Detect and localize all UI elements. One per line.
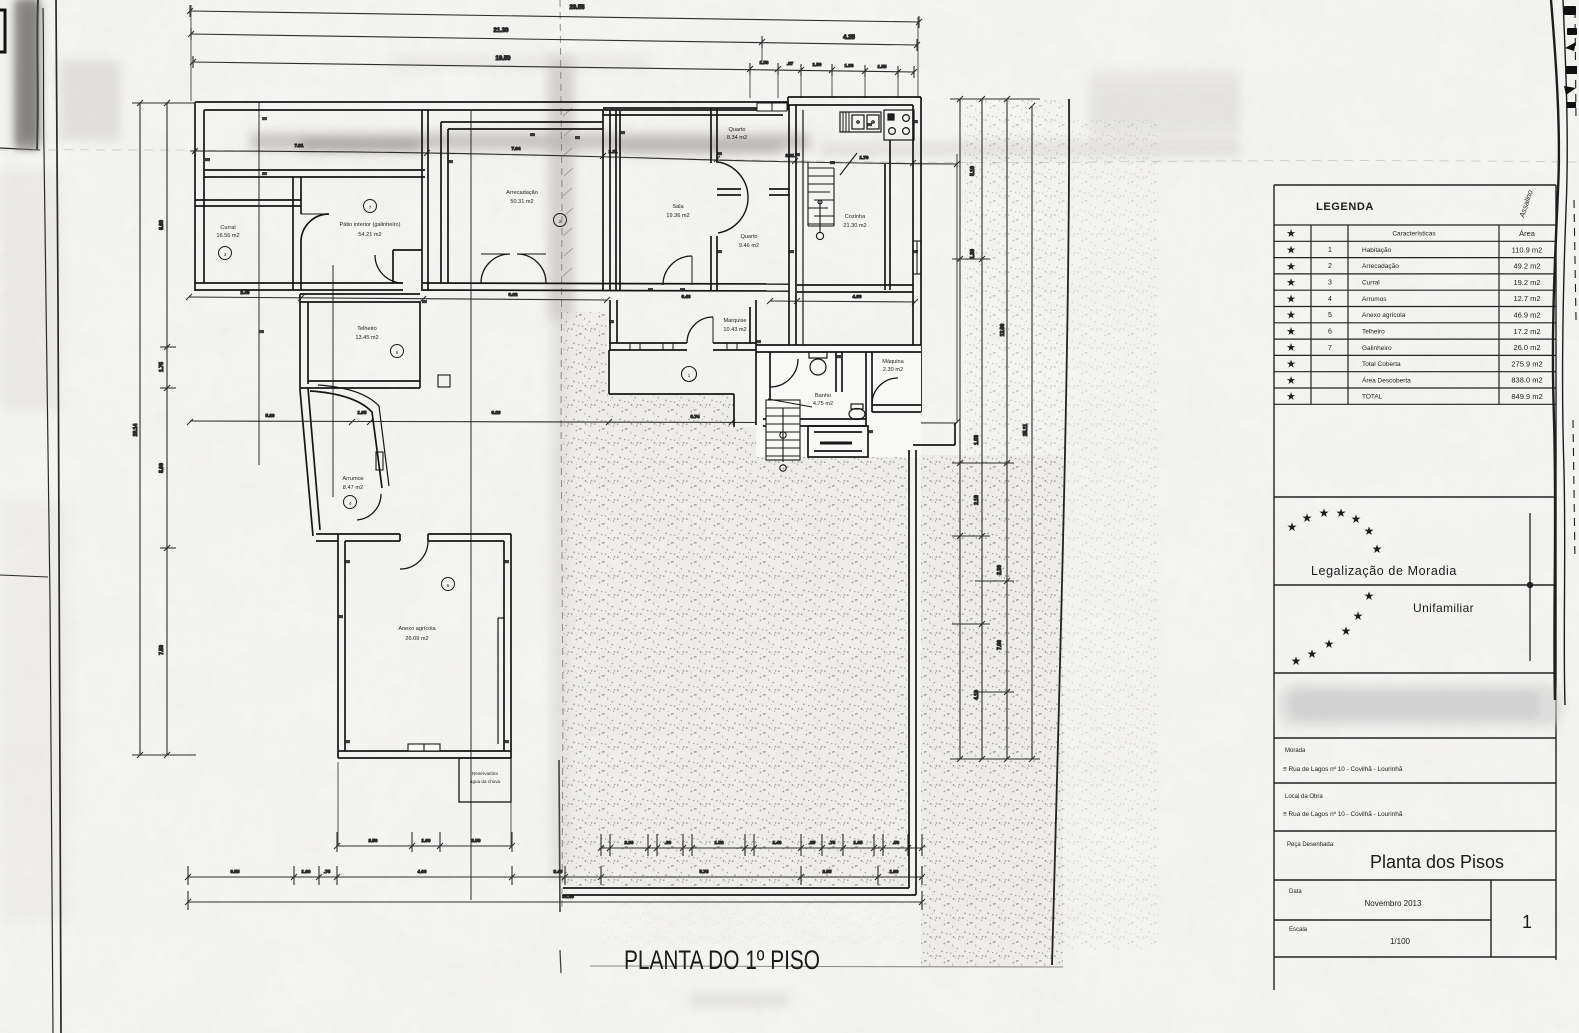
svg-text:9.23: 9.23: [492, 410, 501, 415]
svg-text:9.46 m2: 9.46 m2: [739, 243, 759, 249]
svg-text:★: ★: [1286, 375, 1296, 387]
svg-text:275.9 m2: 275.9 m2: [1511, 359, 1542, 368]
svg-text:2: 2: [1328, 263, 1332, 270]
svg-text:3: 3: [224, 252, 227, 257]
svg-text:10.43 m2: 10.43 m2: [723, 327, 746, 333]
svg-text:★: ★: [1286, 261, 1296, 273]
svg-text:50.31 m2: 50.31 m2: [510, 199, 533, 205]
svg-text:4.00: 4.00: [418, 869, 427, 874]
svg-text:★: ★: [1286, 391, 1296, 403]
svg-text:Banho: Banho: [815, 393, 831, 399]
svg-text:água da chuva: água da chuva: [470, 779, 501, 784]
svg-text:4: 4: [1328, 296, 1332, 303]
svg-text:Marquise: Marquise: [723, 318, 746, 324]
svg-text:2.30 m2: 2.30 m2: [883, 367, 903, 373]
svg-text:★: ★: [1286, 293, 1296, 305]
svg-text:★: ★: [1319, 506, 1330, 520]
svg-text:★: ★: [1287, 520, 1298, 534]
svg-text:1.70: 1.70: [860, 155, 869, 160]
svg-text:1.50: 1.50: [760, 60, 769, 65]
svg-text:2.50: 2.50: [472, 838, 481, 843]
svg-text:.50: .50: [893, 840, 900, 845]
svg-text:Arrumos: Arrumos: [1362, 296, 1387, 303]
svg-text:12.06: 12.06: [1000, 324, 1006, 337]
svg-text:Habitação: Habitação: [1362, 247, 1392, 254]
svg-text:Total Coberta: Total Coberta: [1362, 361, 1401, 368]
svg-text:1.30: 1.30: [970, 249, 976, 259]
svg-text:Peça Desenhada:: Peça Desenhada:: [1287, 842, 1335, 848]
svg-text:1: 1: [688, 373, 691, 378]
svg-text:1.55: 1.55: [878, 64, 887, 69]
svg-text:Planta dos Pisos: Planta dos Pisos: [1370, 852, 1504, 872]
svg-text:1/100: 1/100: [1390, 937, 1411, 946]
svg-text:PLANTA DO 1º PISO: PLANTA DO 1º PISO: [624, 945, 820, 975]
svg-text:1.75: 1.75: [159, 362, 165, 372]
svg-text:★: ★: [1372, 542, 1383, 556]
svg-text:★: ★: [1307, 647, 1318, 661]
svg-text:1.00: 1.00: [302, 869, 311, 874]
svg-text:7.91: 7.91: [295, 143, 304, 148]
svg-text:Arrecadação: Arrecadação: [506, 190, 538, 196]
svg-text:Anexo agrícola: Anexo agrícola: [1362, 312, 1406, 319]
svg-text:★: ★: [1351, 512, 1362, 526]
svg-text:2.30: 2.30: [625, 840, 634, 845]
svg-text:1: 1: [1328, 247, 1332, 254]
svg-text:Data: Data: [1289, 889, 1302, 895]
svg-text:5.10: 5.10: [970, 166, 976, 176]
svg-text:LEGENDA: LEGENDA: [1316, 201, 1374, 213]
svg-text:5.75: 5.75: [700, 869, 709, 874]
svg-text:7.06: 7.06: [997, 640, 1003, 650]
svg-text:2.50: 2.50: [369, 838, 378, 843]
svg-text:.95: .95: [809, 840, 816, 845]
svg-text:5.10: 5.10: [266, 413, 275, 418]
svg-text:4.88: 4.88: [853, 294, 862, 299]
svg-text:Curral: Curral: [1362, 280, 1380, 287]
svg-text:54.21 m2: 54.21 m2: [358, 232, 381, 238]
svg-text:Cozinha: Cozinha: [845, 214, 866, 220]
svg-text:Unifamiliar: Unifamiliar: [1413, 601, 1474, 615]
svg-text:4.75 m2: 4.75 m2: [813, 401, 833, 407]
svg-text:110.9 m2: 110.9 m2: [1512, 245, 1543, 254]
svg-text:Arrumos: Arrumos: [342, 476, 363, 482]
svg-text:1.40: 1.40: [773, 840, 782, 845]
svg-text:26.09 m2: 26.09 m2: [405, 636, 428, 642]
svg-text:6: 6: [396, 350, 399, 355]
svg-text:★: ★: [1353, 609, 1364, 623]
svg-text:★: ★: [1286, 342, 1296, 354]
svg-text:849.9 m2: 849.9 m2: [1511, 392, 1542, 401]
svg-text:Morada: Morada: [1285, 748, 1306, 754]
svg-text:8.34 m2: 8.34 m2: [727, 135, 747, 141]
svg-text:7.94: 7.94: [512, 146, 521, 151]
svg-text:Pátio interior (galinheiro): Pátio interior (galinheiro): [340, 222, 401, 228]
svg-text:★: ★: [1286, 310, 1296, 322]
svg-text:3.40: 3.40: [554, 869, 563, 874]
svg-text:4.10: 4.10: [974, 690, 980, 700]
svg-text:25.11: 25.11: [1023, 424, 1029, 436]
svg-text:1.30: 1.30: [845, 63, 854, 68]
svg-text:29.55: 29.55: [569, 5, 585, 11]
svg-text:7: 7: [369, 205, 372, 210]
svg-text:6.46: 6.46: [682, 294, 691, 299]
svg-text:Curral: Curral: [220, 225, 235, 231]
svg-text:5.90: 5.90: [159, 463, 165, 473]
svg-text:Quarto: Quarto: [728, 127, 745, 133]
svg-text:★: ★: [1364, 524, 1375, 538]
svg-text:19.2 m2: 19.2 m2: [1513, 278, 1540, 287]
svg-text:★: ★: [1336, 506, 1347, 520]
svg-text:Arrecadação: Arrecadação: [1362, 263, 1399, 270]
svg-text:838.0 m2: 838.0 m2: [1511, 376, 1542, 385]
svg-text:Reservatório: Reservatório: [472, 771, 498, 776]
svg-text:Telheiro: Telheiro: [357, 326, 377, 332]
svg-text:★: ★: [1302, 511, 1313, 525]
svg-text:★: ★: [1341, 624, 1352, 638]
svg-text:6: 6: [1328, 328, 1332, 335]
svg-text:3.55: 3.55: [231, 869, 240, 874]
svg-text:4.25: 4.25: [843, 35, 855, 41]
svg-text:2.30: 2.30: [997, 565, 1003, 575]
svg-text:2.55: 2.55: [823, 869, 832, 874]
svg-text:.75: .75: [324, 869, 331, 874]
svg-text:Área Descoberta: Área Descoberta: [1362, 375, 1411, 384]
svg-text:5: 5: [1328, 312, 1332, 319]
svg-text:46.9 m2: 46.9 m2: [1513, 310, 1540, 319]
svg-text:Telheiro: Telheiro: [1362, 328, 1385, 335]
svg-text:17.2 m2: 17.2 m2: [1513, 327, 1540, 336]
svg-text:★: ★: [1286, 228, 1296, 240]
svg-text:1.05: 1.05: [854, 840, 863, 845]
svg-text:Sala: Sala: [672, 204, 684, 210]
svg-text:26.0 m2: 26.0 m2: [1513, 343, 1540, 352]
svg-text:Legalização de Moradia: Legalização de Moradia: [1311, 564, 1457, 578]
svg-text:Escala: Escala: [1289, 927, 1308, 933]
svg-text:4: 4: [349, 501, 352, 506]
svg-text:Área: Área: [1519, 229, 1536, 238]
svg-text:12.7 m2: 12.7 m2: [1513, 294, 1540, 303]
svg-text:Anexo agrícola: Anexo agrícola: [398, 626, 436, 632]
svg-text:2: 2: [559, 219, 562, 224]
svg-text:Galinheiro: Galinheiro: [1362, 345, 1392, 352]
svg-text:1: 1: [1522, 912, 1532, 932]
svg-text:.75: .75: [829, 840, 836, 845]
svg-text:7: 7: [1328, 345, 1332, 352]
svg-text:1.50: 1.50: [813, 62, 822, 67]
svg-text:≡ Rua de Lagos nº 10 - Cov: ≡ Rua de Lagos nº 10 - Covilhã - Lourinh…: [1283, 811, 1403, 818]
svg-text:★: ★: [1286, 277, 1296, 289]
svg-text:8.60: 8.60: [159, 220, 165, 230]
svg-text:9.62: 9.62: [509, 292, 518, 297]
svg-text:≡ Rua de Lagos nº 10 - Cov: ≡ Rua de Lagos nº 10 - Covilhã - Lourinh…: [1283, 766, 1403, 773]
svg-text:Quarto: Quarto: [740, 234, 757, 240]
svg-text:16.56 m2: 16.56 m2: [216, 233, 239, 239]
svg-text:Máquina: Máquina: [882, 359, 904, 365]
svg-text:3.81: 3.81: [786, 153, 795, 158]
svg-text:.87: .87: [787, 61, 794, 66]
svg-text:.30: .30: [665, 840, 672, 845]
svg-text:1.52: 1.52: [715, 840, 724, 845]
svg-text:13.45 m2: 13.45 m2: [355, 335, 378, 341]
svg-text:Local da Obra: Local da Obra: [1285, 794, 1323, 800]
svg-text:2.10: 2.10: [974, 495, 980, 505]
svg-text:21.30: 21.30: [493, 28, 509, 34]
svg-text:★: ★: [1291, 654, 1302, 668]
svg-text:1.88: 1.88: [974, 435, 980, 445]
svg-text:19.50: 19.50: [495, 56, 511, 62]
svg-text:7.50: 7.50: [159, 645, 165, 655]
svg-text:Características: Características: [1392, 231, 1436, 238]
svg-text:21.30 m2: 21.30 m2: [843, 223, 866, 229]
svg-text:3: 3: [1328, 280, 1332, 287]
svg-text:1.85: 1.85: [358, 410, 367, 415]
svg-text:5: 5: [447, 583, 450, 588]
svg-text:Novembro 2013: Novembro 2013: [1365, 899, 1422, 908]
svg-text:9.74: 9.74: [691, 414, 700, 419]
svg-text:TOTAL: TOTAL: [1362, 394, 1383, 401]
svg-text:8.47 m2: 8.47 m2: [343, 485, 363, 491]
svg-text:★: ★: [1286, 359, 1296, 371]
svg-text:1.00: 1.00: [422, 838, 431, 843]
svg-text:1.90: 1.90: [890, 869, 899, 874]
svg-text:★: ★: [1364, 589, 1375, 603]
svg-text:★: ★: [1286, 326, 1296, 338]
svg-text:19.36 m2: 19.36 m2: [666, 213, 689, 219]
svg-text:28.14: 28.14: [133, 424, 139, 437]
svg-text:★: ★: [1286, 245, 1296, 257]
svg-text:★: ★: [1324, 637, 1335, 651]
svg-text:49.2 m2: 49.2 m2: [1513, 262, 1540, 271]
